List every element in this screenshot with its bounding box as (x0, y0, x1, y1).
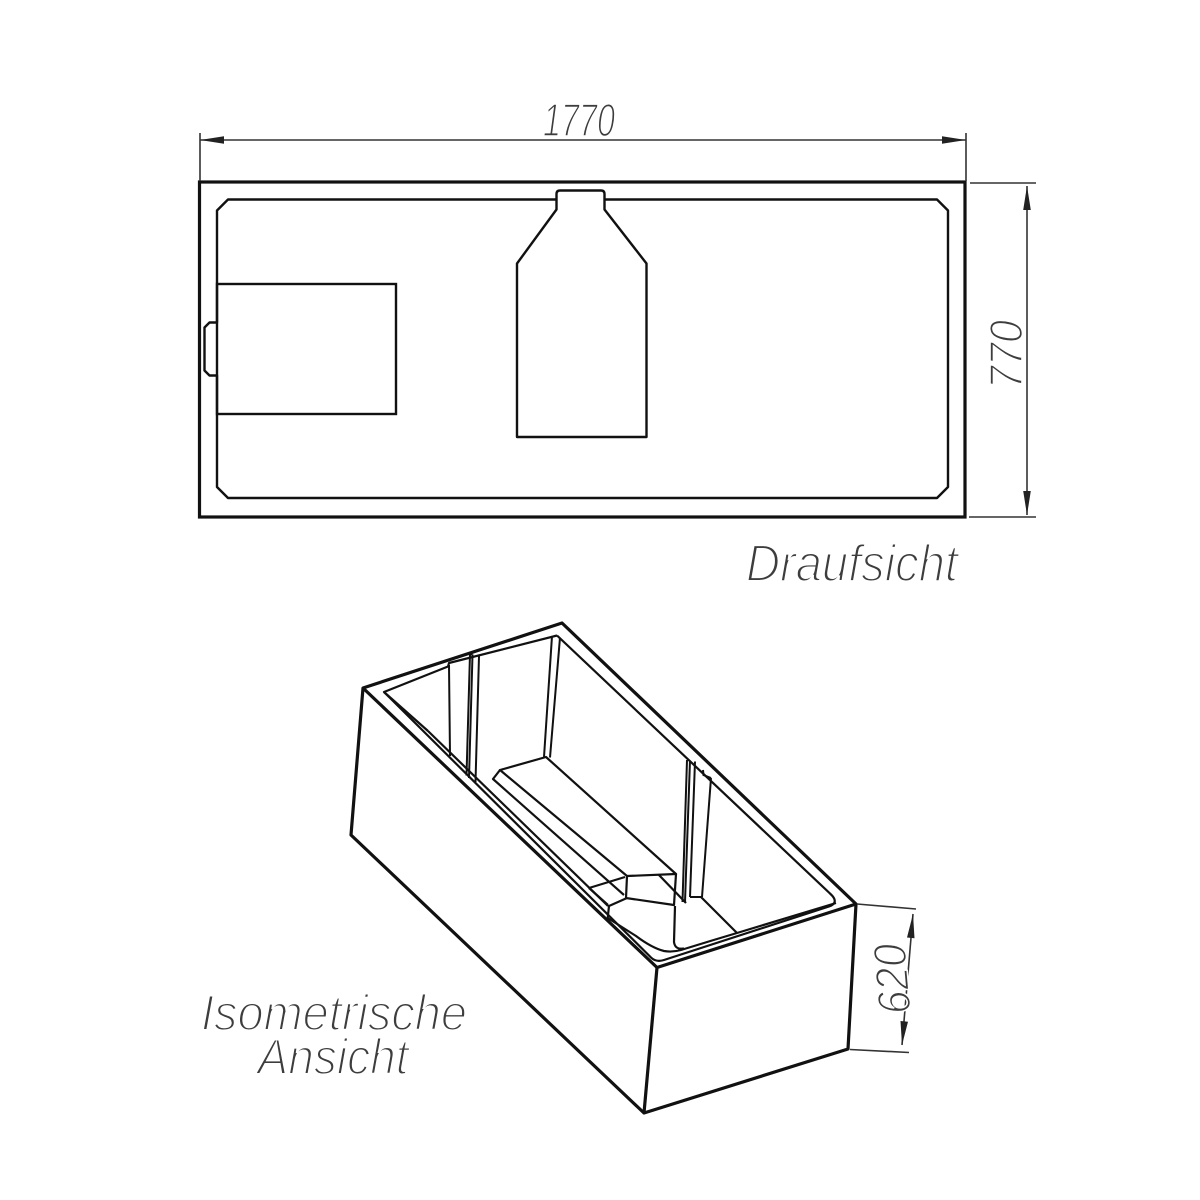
svg-text:1770: 1770 (543, 94, 615, 146)
svg-text:620: 620 (863, 941, 921, 1017)
svg-text:Ansicht: Ansicht (255, 1029, 411, 1085)
svg-text:Draufsicht: Draufsicht (746, 535, 960, 593)
svg-text:770: 770 (980, 320, 1032, 389)
